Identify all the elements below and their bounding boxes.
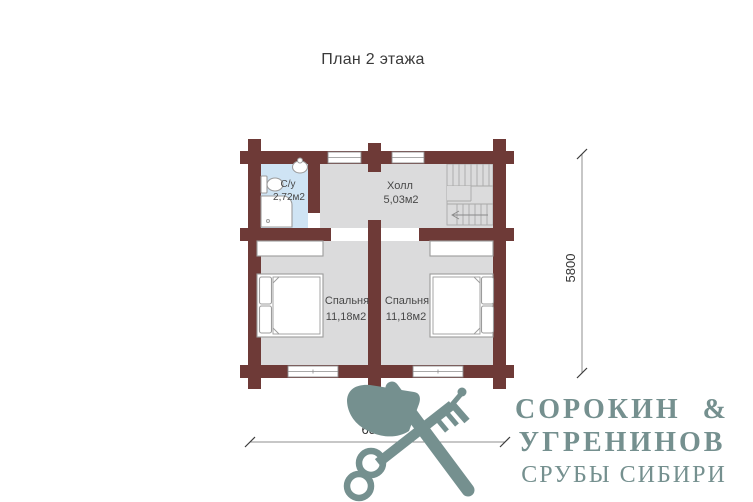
door-opening-bedroom-right (381, 228, 419, 241)
bed-left (257, 274, 323, 337)
pillow (260, 277, 272, 304)
dimension-vertical: 5800 (563, 149, 587, 378)
door-opening-bedroom-left (331, 228, 368, 241)
dimension-height-label: 5800 (563, 254, 578, 283)
logo-line-3: СРУБЫ СИБИРИ (521, 462, 727, 488)
bed-right (430, 274, 494, 337)
bathroom-area-label: 2,72м2 (273, 192, 305, 203)
logo-emblem (347, 385, 468, 498)
bathroom-name-label: С/у (281, 179, 296, 190)
wall-left (248, 139, 261, 389)
logo-line-1: СОРОКИН & (515, 394, 729, 425)
page-title: План 2 этажа (321, 51, 424, 68)
bedroom-left-area-label: 11,18м2 (326, 311, 366, 323)
wall-bathroom (308, 164, 320, 213)
floor-plan-page: План 2 этажа (0, 0, 753, 502)
pillow (482, 306, 494, 333)
hall-area-label: 5,03м2 (383, 194, 418, 206)
wall-center-stub (368, 143, 381, 172)
bedroom-right-name-label: Спальня (385, 295, 429, 307)
wall-bedroom-divider (368, 220, 381, 389)
wardrobe-left (257, 241, 323, 256)
stair-landing (447, 186, 471, 201)
pillow (482, 277, 494, 304)
pillow (260, 306, 272, 333)
wardrobe-right (430, 241, 493, 256)
wall-right (493, 139, 506, 389)
bedroom-left-name-label: Спальня (325, 295, 369, 307)
bedroom-right-area-label: 11,18м2 (386, 311, 426, 323)
door-opening-bathroom (308, 213, 320, 228)
hall-name-label: Холл (387, 180, 413, 192)
floor-plan: План 2 этажа (0, 0, 753, 502)
logo-line-2: УГРЕНИНОВ (519, 427, 726, 458)
logo-text: СОРОКИН & УГРЕНИНОВ СРУБЫ СИБИРИ (515, 394, 729, 488)
